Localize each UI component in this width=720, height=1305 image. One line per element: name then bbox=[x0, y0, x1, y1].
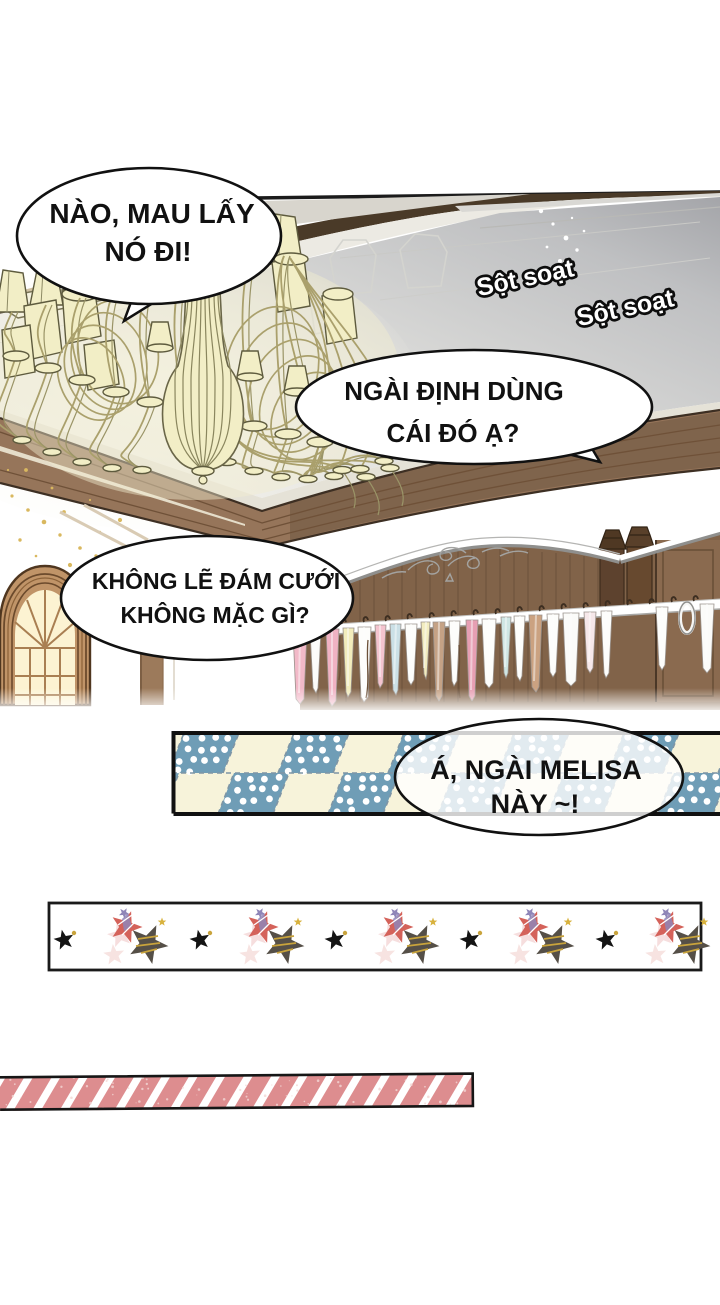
svg-text:CÁI ĐÓ Ạ?: CÁI ĐÓ Ạ? bbox=[387, 418, 520, 448]
svg-text:Á, NGÀI MELISA: Á, NGÀI MELISA bbox=[430, 754, 642, 785]
svg-text:KHÔNG LẼ ĐÁM CƯỚI: KHÔNG LẼ ĐÁM CƯỚI bbox=[92, 567, 340, 594]
svg-text:KHÔNG MẶC GÌ?: KHÔNG MẶC GÌ? bbox=[120, 601, 309, 628]
svg-text:NÀO, MAU LẤY: NÀO, MAU LẤY bbox=[49, 198, 255, 229]
svg-text:NÓ ĐI!: NÓ ĐI! bbox=[104, 236, 191, 267]
svg-text:NÀY ~!: NÀY ~! bbox=[491, 788, 580, 819]
svg-text:NGÀI ĐỊNH DÙNG: NGÀI ĐỊNH DÙNG bbox=[344, 376, 564, 406]
